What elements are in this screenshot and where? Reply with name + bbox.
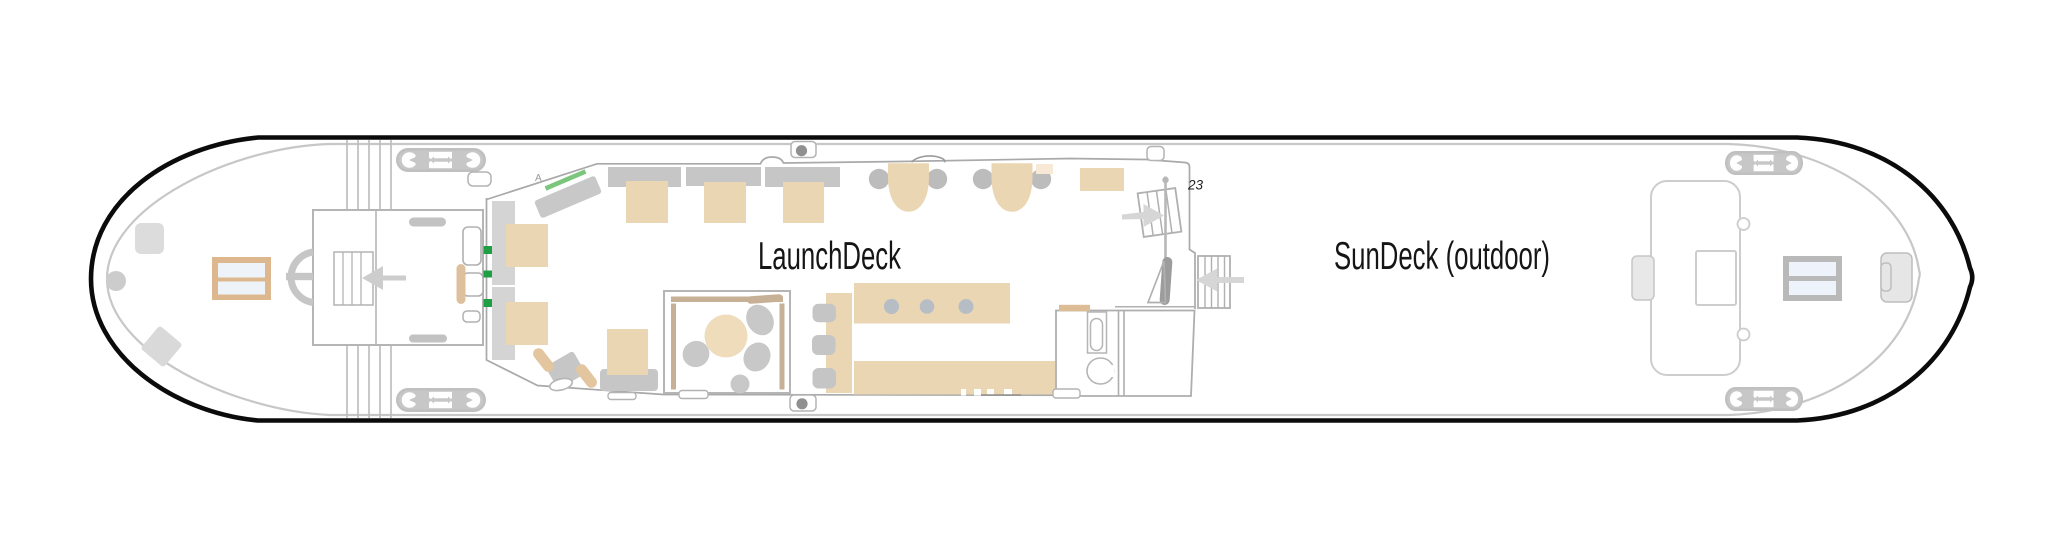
- svg-text:SunDeck (outdoor): SunDeck (outdoor): [1334, 235, 1550, 278]
- svg-text:23: 23: [1187, 178, 1204, 193]
- svg-text:A: A: [535, 173, 542, 184]
- svg-text:LaunchDeck: LaunchDeck: [758, 235, 901, 278]
